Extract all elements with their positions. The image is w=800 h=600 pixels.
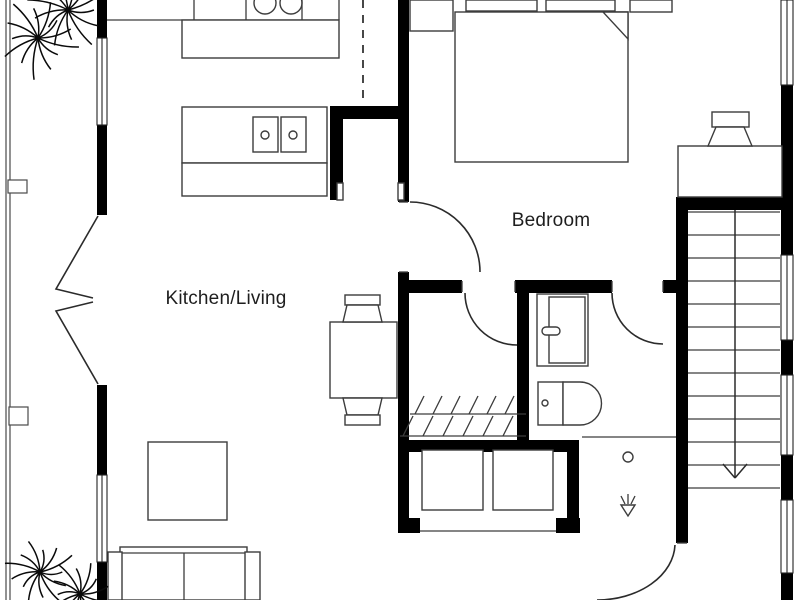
showerhead-spray — [631, 496, 635, 504]
plan-canvas — [0, 0, 800, 600]
plant-top-left-leaf — [55, 10, 68, 45]
wall — [97, 125, 107, 215]
bed — [455, 12, 628, 162]
desk-chair-back — [712, 112, 749, 127]
showerhead-spray — [621, 496, 625, 504]
bathroom-door-arc — [612, 293, 663, 344]
rug — [148, 442, 227, 520]
faucet — [542, 327, 560, 335]
nightstand — [630, 0, 672, 12]
shower-drain — [623, 452, 633, 462]
hanger — [415, 396, 424, 414]
plant-bottom-left-leaf — [40, 555, 72, 572]
wall — [676, 197, 783, 210]
wall — [781, 340, 793, 375]
hanger — [451, 396, 460, 414]
kitchen-island-counter — [182, 163, 327, 196]
wall — [398, 518, 420, 533]
balcony-folding-door-leaf — [56, 302, 98, 384]
sofa-armrest — [108, 552, 122, 600]
wall — [781, 573, 793, 600]
wall — [398, 272, 409, 533]
plant-top-left-stem — [36, 36, 41, 41]
plant-top-left-leaf — [38, 20, 57, 38]
showerhead-icon — [621, 505, 635, 516]
wall — [676, 197, 688, 543]
kitchen-counter — [182, 20, 339, 58]
pillow — [466, 0, 537, 11]
plant-top-left-leaf — [68, 10, 94, 13]
hanger — [505, 396, 514, 414]
wall — [97, 385, 107, 475]
plant-top-left-leaf — [33, 38, 38, 80]
plant-bottom-left-leaf — [28, 572, 40, 600]
dining-chair-back — [345, 295, 380, 305]
hanger — [433, 396, 442, 414]
nightstand — [410, 0, 453, 31]
dining-chair-back — [345, 415, 380, 425]
bedroom-door-arc — [410, 202, 480, 272]
plant-top-left-leaf — [12, 36, 38, 39]
wall — [515, 280, 612, 293]
wall — [781, 455, 793, 500]
pantry-door-jamb — [337, 183, 343, 200]
plant-top-left-leaf — [22, 38, 38, 63]
wall — [556, 518, 580, 533]
balcony-post — [8, 180, 27, 193]
wall — [97, 0, 107, 38]
wall — [781, 85, 793, 255]
wall — [398, 0, 409, 202]
hanger — [443, 416, 453, 436]
wall — [517, 293, 529, 440]
plant-top-left-leaf — [38, 2, 51, 38]
dining-table — [330, 322, 397, 398]
storage-box — [493, 450, 553, 510]
balcony-post — [9, 407, 28, 425]
plant-bottom-left-stem — [78, 592, 83, 597]
entry-door-arc — [597, 545, 675, 600]
plant-bottom-left-stem — [38, 570, 43, 575]
pantry-door-jamb — [398, 183, 404, 200]
plant-bottom-left-leaf — [40, 572, 60, 600]
pillow — [546, 0, 615, 11]
desk-chair-seat — [708, 127, 752, 146]
storage-box — [422, 450, 483, 510]
plant-top-left-stem — [66, 8, 71, 13]
hanger — [423, 416, 433, 436]
stairs-down-arrow — [735, 464, 747, 478]
hanger — [463, 416, 473, 436]
plant-bottom-left-leaf — [40, 572, 62, 575]
wall — [97, 562, 107, 600]
room-label-bedroom: Bedroom — [512, 210, 591, 232]
hanger — [503, 416, 513, 436]
closet-door-arc — [465, 293, 517, 345]
stairs-down-arrow — [723, 464, 735, 478]
sink-unit — [253, 117, 278, 152]
floor-plan: Bedroom Kitchen/Living — [0, 0, 800, 600]
stove-burner — [254, 0, 276, 14]
toilet-bowl — [563, 382, 602, 425]
wall — [398, 280, 462, 293]
hanger — [483, 416, 493, 436]
dining-chair-seat — [343, 398, 382, 415]
plant-top-left-leaf — [49, 10, 68, 27]
hanger — [487, 396, 496, 414]
balcony-folding-door-leaf — [56, 216, 98, 298]
dining-chair-seat — [343, 305, 382, 322]
stove-burner — [280, 0, 302, 14]
room-label-kitchen-living: Kitchen/Living — [165, 288, 286, 310]
sofa-armrest — [245, 552, 260, 600]
hanger — [469, 396, 478, 414]
desk — [678, 146, 782, 197]
sink-unit — [281, 117, 306, 152]
